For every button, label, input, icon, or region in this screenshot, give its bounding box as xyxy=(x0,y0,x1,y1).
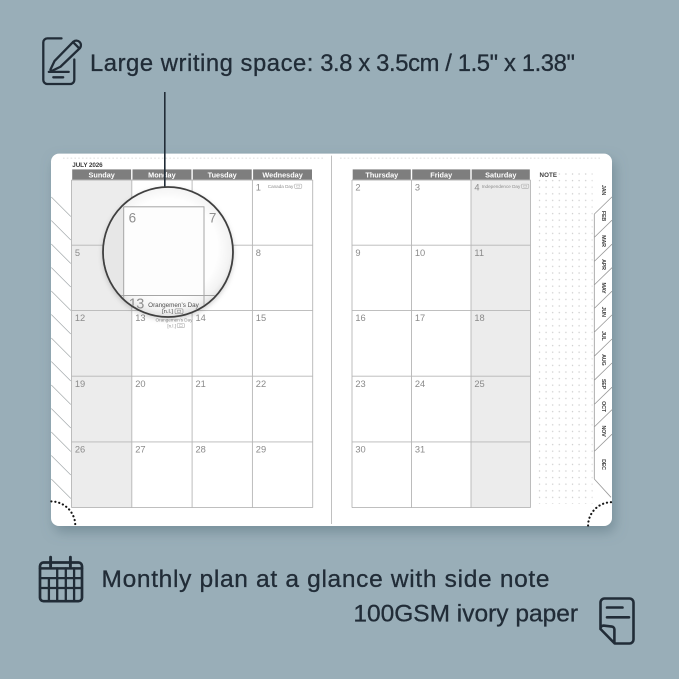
svg-text:27: 27 xyxy=(135,445,145,455)
svg-text:FEB: FEB xyxy=(600,211,606,221)
svg-text:Monthly plan at a glance with: Monthly plan at a glance with side note xyxy=(102,566,551,593)
svg-text:Monday: Monday xyxy=(148,170,177,179)
svg-text:19: 19 xyxy=(75,379,85,389)
svg-text:Thursday: Thursday xyxy=(365,170,399,179)
svg-text:NOV: NOV xyxy=(600,425,606,437)
svg-text:Orangemen’s Day: Orangemen’s Day xyxy=(148,302,199,309)
svg-text:28: 28 xyxy=(196,445,206,455)
svg-text:3: 3 xyxy=(415,183,420,193)
svg-text:17: 17 xyxy=(415,313,425,323)
svg-text:14: 14 xyxy=(196,313,206,323)
svg-text:[n.l.]: [n.l.] xyxy=(162,309,173,315)
svg-text:100GSM ivory paper: 100GSM ivory paper xyxy=(353,601,578,628)
svg-text:Orangemen’s Day: Orangemen’s Day xyxy=(156,317,194,322)
svg-text:DEC: DEC xyxy=(600,459,606,470)
svg-text:MAR: MAR xyxy=(600,235,606,247)
svg-text:21: 21 xyxy=(196,379,206,389)
svg-text:[n.l.]: [n.l.] xyxy=(167,323,176,328)
svg-text:Canada Day: Canada Day xyxy=(268,184,294,189)
svg-text:8: 8 xyxy=(256,248,261,258)
svg-text:JAN: JAN xyxy=(600,185,606,195)
svg-text:18: 18 xyxy=(474,313,484,323)
svg-text:6: 6 xyxy=(129,210,137,225)
svg-text:Independence Day: Independence Day xyxy=(482,184,521,189)
svg-text:APR: APR xyxy=(600,259,606,270)
svg-text:12: 12 xyxy=(75,313,85,323)
svg-text:5: 5 xyxy=(75,248,80,258)
svg-text:Sunday: Sunday xyxy=(89,170,116,179)
svg-text:23: 23 xyxy=(355,379,365,389)
svg-text:9: 9 xyxy=(355,248,360,258)
svg-text:NOTE: NOTE xyxy=(540,172,558,179)
svg-text:26: 26 xyxy=(75,445,85,455)
svg-text:JULY 2026: JULY 2026 xyxy=(72,162,103,169)
svg-text:Tuesday: Tuesday xyxy=(208,170,238,179)
svg-text:16: 16 xyxy=(355,313,365,323)
svg-text:JUN: JUN xyxy=(600,307,606,317)
svg-text:JUL: JUL xyxy=(600,331,606,341)
svg-text:MAY: MAY xyxy=(600,283,606,294)
svg-text:10: 10 xyxy=(415,248,425,258)
svg-text:25: 25 xyxy=(474,379,484,389)
svg-text:22: 22 xyxy=(256,379,266,389)
svg-text:AUG: AUG xyxy=(600,354,606,365)
svg-text:Friday: Friday xyxy=(430,170,453,179)
svg-text:Saturday: Saturday xyxy=(485,170,517,179)
svg-text:15: 15 xyxy=(256,313,266,323)
svg-text:OCT: OCT xyxy=(600,401,606,413)
svg-text:30: 30 xyxy=(355,445,365,455)
svg-text:29: 29 xyxy=(256,445,266,455)
svg-text:1: 1 xyxy=(256,183,261,193)
svg-text:2: 2 xyxy=(355,183,360,193)
svg-text:4: 4 xyxy=(474,183,479,193)
svg-text:11: 11 xyxy=(474,248,484,258)
svg-text:20: 20 xyxy=(135,379,145,389)
svg-text:Wednesday: Wednesday xyxy=(262,170,303,179)
svg-text:24: 24 xyxy=(415,379,425,389)
svg-text:SEP: SEP xyxy=(600,379,606,390)
svg-text:Large writing space: 3.8 x 3.5: Large writing space: 3.8 x 3.5cm / 1.5" … xyxy=(90,50,575,77)
svg-text:7: 7 xyxy=(209,210,217,225)
svg-text:31: 31 xyxy=(415,445,425,455)
svg-text:13: 13 xyxy=(135,313,145,323)
